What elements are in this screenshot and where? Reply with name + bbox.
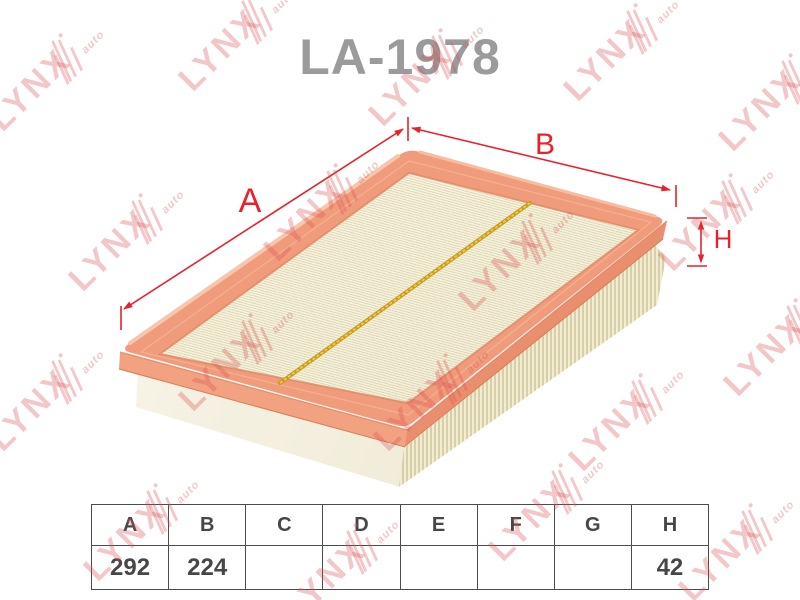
dimension-a-arrow-upper <box>394 126 406 137</box>
spec-value-g <box>554 546 631 590</box>
table-row: A B C D E F G H <box>92 505 709 546</box>
spec-value-c <box>246 546 323 590</box>
part-number-title: LA-1978 <box>0 28 800 86</box>
rim-highlight-left <box>130 156 398 343</box>
rim-front-crease <box>120 221 667 430</box>
dimension-h-label: H <box>714 224 733 254</box>
spec-col-header-d: D <box>323 505 400 546</box>
spec-col-header-h: H <box>631 505 708 546</box>
product-spec-card: LA-1978 44214 40024750 JAPAN LYNX auto <box>0 0 800 600</box>
spec-col-header-f: F <box>477 505 554 546</box>
dimension-h-arrow-down <box>698 255 704 264</box>
spec-col-header-c: C <box>246 505 323 546</box>
spec-table-body: 292 224 42 <box>92 546 709 590</box>
spec-table: A B C D E F G H 292 224 42 <box>91 504 709 590</box>
spec-col-header-e: E <box>400 505 477 546</box>
dimension-b-arrow-left <box>410 125 421 134</box>
dimension-a-label: A <box>239 182 262 220</box>
dimension-b-label: B <box>535 128 555 161</box>
dimension-a-arrow-lower <box>121 302 133 313</box>
rim-right-wall-bottom-edge <box>404 239 663 447</box>
spec-value-e <box>400 546 477 590</box>
spec-value-f <box>477 546 554 590</box>
table-row: 292 224 42 <box>92 546 709 590</box>
spec-value-h: 42 <box>631 546 708 590</box>
spec-col-header-a: A <box>92 505 169 546</box>
dimension-h <box>687 218 707 266</box>
dimension-b-arrow-right <box>661 185 672 194</box>
spec-value-b: 224 <box>169 546 246 590</box>
spec-table-header: A B C D E F G H <box>92 505 709 546</box>
dimension-a-line <box>124 129 403 309</box>
spec-value-a: 292 <box>92 546 169 590</box>
spec-col-header-g: G <box>554 505 631 546</box>
dimension-a <box>121 117 408 330</box>
spec-value-d <box>323 546 400 590</box>
dimension-h-arrow-up <box>698 221 704 230</box>
spec-col-header-b: B <box>169 505 246 546</box>
rim-front-right-wall <box>404 221 667 447</box>
